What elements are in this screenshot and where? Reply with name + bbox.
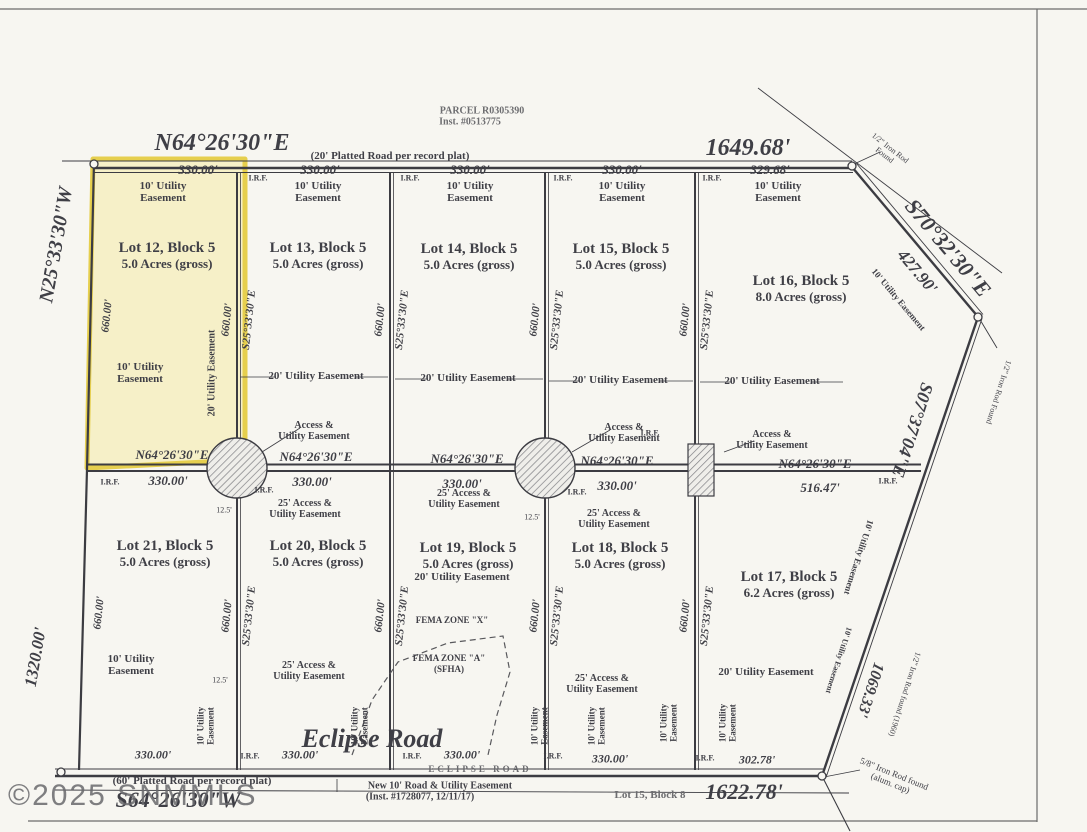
mid-segment-distance: 330.00' bbox=[597, 479, 636, 493]
eclipse-road-stamp: ECLIPSE ROAD bbox=[428, 765, 531, 775]
fema-zone-x-label: FEMA ZONE "X" bbox=[416, 616, 489, 626]
utility-easement-20-label: 20' Utility Easement bbox=[572, 375, 667, 387]
south-segment-distance: 302.78' bbox=[739, 754, 775, 767]
parcel-instrument: Inst. #0513775 bbox=[439, 118, 501, 129]
fema-zone-a-label: FEMA ZONE "A" bbox=[413, 654, 486, 664]
irf-marker: I.R.F. bbox=[248, 175, 267, 184]
utility-easement-10-label: 10' UtilityEasement bbox=[140, 181, 187, 205]
access-25-easement-label: 25' Access &Utility Easement bbox=[269, 499, 340, 521]
lot14-name: Lot 14, Block 5 bbox=[421, 241, 518, 257]
south-segment-distance: 330.00' bbox=[444, 749, 480, 762]
lot15-acres: 5.0 Acres (gross) bbox=[576, 258, 667, 272]
utility-easement-10-vertical: 10' UtilityEasement bbox=[718, 704, 737, 742]
north-road-bearing: N64°26'30"E bbox=[155, 131, 290, 157]
mid-segment-distance: 330.00' bbox=[148, 474, 187, 488]
lot21-acres: 5.0 Acres (gross) bbox=[120, 555, 211, 569]
fema-sfha-label: (SFHA) bbox=[434, 665, 464, 675]
utility-easement-20-label: 20' Utility Easement bbox=[414, 572, 509, 584]
access-25-easement-label: 25' Access &Utility Easement bbox=[566, 674, 637, 696]
lot17-acres: 6.2 Acres (gross) bbox=[744, 586, 835, 600]
lot19-acres: 5.0 Acres (gross) bbox=[423, 557, 514, 571]
north-segment-distance: 330.00' bbox=[300, 163, 339, 177]
lot17-name: Lot 17, Block 5 bbox=[741, 569, 838, 585]
irf-marker: I.R.F. bbox=[100, 479, 119, 488]
south-segment-distance: 330.00' bbox=[135, 749, 171, 762]
lot18-acres: 5.0 Acres (gross) bbox=[575, 557, 666, 571]
lot12-name: Lot 12, Block 5 bbox=[119, 240, 216, 256]
half-offset-label: 12.5' bbox=[216, 507, 231, 516]
mid-road-bearing: N64°26'30"E bbox=[135, 448, 208, 462]
adjacent-lot-label: Lot 15, Block 8 bbox=[615, 790, 686, 802]
north-road-total-distance: 1649.68' bbox=[706, 136, 791, 162]
lot14-acres: 5.0 Acres (gross) bbox=[424, 258, 515, 272]
utility-easement-20-label: 20' Utility Easement bbox=[718, 667, 813, 679]
lot20-acres: 5.0 Acres (gross) bbox=[273, 555, 364, 569]
north-segment-distance: 330.00' bbox=[178, 163, 217, 177]
irf-marker: I.R.F. bbox=[400, 175, 419, 184]
access-25-easement-label: 25' Access &Utility Easement bbox=[578, 509, 649, 531]
lot12-acres: 5.0 Acres (gross) bbox=[122, 257, 213, 271]
utility-easement-10-vertical: 10' UtilityEasement bbox=[530, 707, 549, 745]
lot18-name: Lot 18, Block 5 bbox=[572, 540, 669, 556]
utility-easement-20-label: 20' Utility Easement bbox=[724, 376, 819, 388]
utility-easement-10-label: 10' UtilityEasement bbox=[295, 181, 342, 205]
mid-road-bearing: N64°26'30"E bbox=[778, 457, 851, 471]
irf-marker: I.R.F. bbox=[702, 175, 721, 184]
access-25-easement-label: 25' Access &Utility Easement bbox=[273, 661, 344, 683]
south-road-total-distance: 1622.78' bbox=[705, 780, 783, 804]
irf-marker: I.R.F. bbox=[878, 478, 897, 487]
eclipse-road-name: Eclipse Road bbox=[302, 725, 443, 753]
lot19-name: Lot 19, Block 5 bbox=[420, 540, 517, 556]
utility-easement-10-vertical: 10' UtilityEasement bbox=[196, 707, 215, 745]
irf-marker: I.R.F. bbox=[567, 489, 586, 498]
south-segment-distance: 330.00' bbox=[592, 753, 628, 766]
utility-easement-10-label: 10' UtilityEasement bbox=[108, 654, 155, 678]
mls-watermark: ©2025 SNMMLS bbox=[8, 780, 258, 812]
half-offset-label: 12.5' bbox=[524, 514, 539, 523]
lot15-name: Lot 15, Block 5 bbox=[573, 241, 670, 257]
utility-easement-10-label: 10' UtilityEasement bbox=[755, 181, 802, 205]
mid-road-bearing: N64°26'30"E bbox=[580, 454, 653, 468]
north-segment-distance: 329.68' bbox=[750, 163, 789, 177]
south-segment-distance: 330.00' bbox=[282, 749, 318, 762]
irf-marker: I.R.F. bbox=[240, 753, 259, 762]
utility-easement-10-label: 10' UtilityEasement bbox=[117, 362, 164, 386]
lot21-name: Lot 21, Block 5 bbox=[117, 538, 214, 554]
access-easement-square bbox=[688, 444, 714, 496]
mid-road-bearing: N64°26'30"E bbox=[279, 450, 352, 464]
utility-easement-10-vertical: 10' UtilityEasement bbox=[659, 704, 678, 742]
mid-road-bearing: N64°26'30"E bbox=[430, 452, 503, 466]
utility-easement-10-vertical: 10' UtilityEasement bbox=[587, 707, 606, 745]
mid-segment-distance: 330.00' bbox=[292, 475, 331, 489]
lot13-name: Lot 13, Block 5 bbox=[270, 240, 367, 256]
new-road-easement-line2: (Inst. #1728077, 12/11/17) bbox=[366, 793, 474, 804]
utility-easement-10-label: 10' UtilityEasement bbox=[599, 181, 646, 205]
access-25-easement-label: 25' Access &Utility Easement bbox=[428, 489, 499, 511]
access-utility-easement-label: Access &Utility Easement bbox=[588, 423, 659, 445]
irf-marker: I.R.F. bbox=[543, 753, 562, 762]
half-offset-label: 12.5' bbox=[212, 677, 227, 686]
irf-marker: I.R.F. bbox=[254, 487, 273, 496]
access-utility-easement-label: Access &Utility Easement bbox=[278, 421, 349, 443]
lot16-name: Lot 16, Block 5 bbox=[753, 273, 850, 289]
north-segment-distance: 330.00' bbox=[602, 163, 641, 177]
utility-easement-20-label: 20' Utility Easement bbox=[420, 373, 515, 385]
mid-segment-distance: 516.47' bbox=[800, 481, 839, 495]
lot16-acres: 8.0 Acres (gross) bbox=[756, 290, 847, 304]
irf-marker: I.R.F. bbox=[402, 753, 421, 762]
access-utility-easement-label: Access &Utility Easement bbox=[736, 430, 807, 452]
access-easement-circle-east bbox=[515, 438, 575, 498]
north-segment-distance: 330.00' bbox=[450, 163, 489, 177]
utility-easement-10-label: 10' UtilityEasement bbox=[447, 181, 494, 205]
utility-easement-20-vertical: 20' Utility Easement bbox=[208, 330, 219, 417]
plat-map-sheet: PARCEL R0305390 Inst. #0513775 N64°26'30… bbox=[0, 0, 1087, 832]
irf-marker: I.R.F. bbox=[695, 755, 714, 764]
irf-marker: I.R.F. bbox=[553, 175, 572, 184]
lot13-acres: 5.0 Acres (gross) bbox=[273, 257, 364, 271]
utility-easement-20-label: 20' Utility Easement bbox=[268, 371, 363, 383]
lot20-name: Lot 20, Block 5 bbox=[270, 538, 367, 554]
